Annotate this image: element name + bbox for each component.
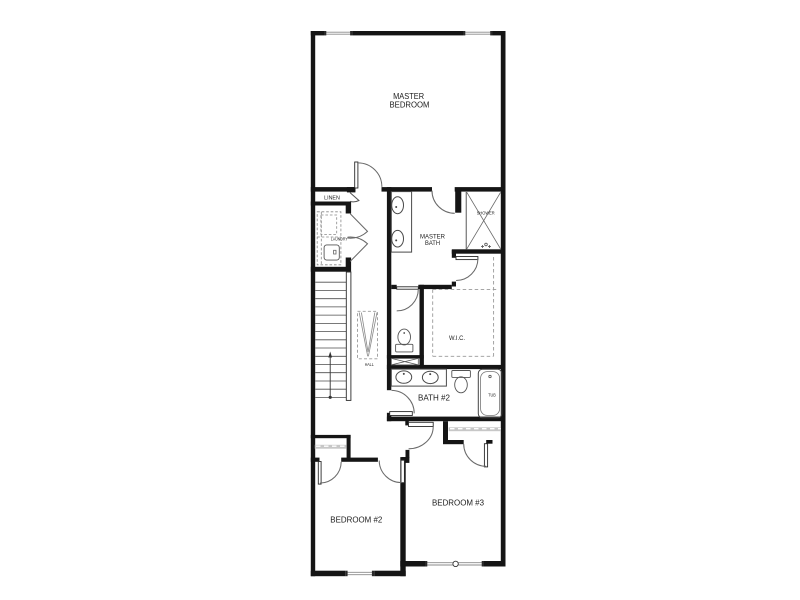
- svg-text:BEDROOM #3: BEDROOM #3: [432, 499, 485, 508]
- svg-text:TUB: TUB: [488, 393, 496, 398]
- svg-text:BATH #2: BATH #2: [418, 393, 451, 402]
- svg-text:BEDROOM: BEDROOM: [390, 100, 430, 109]
- svg-text:LAUNDRY: LAUNDRY: [331, 236, 348, 241]
- svg-text:LINEN: LINEN: [324, 195, 340, 201]
- svg-text:HALL: HALL: [365, 362, 375, 367]
- svg-text:SHOWER: SHOWER: [477, 211, 496, 216]
- svg-text:BEDROOM #2: BEDROOM #2: [330, 515, 383, 524]
- svg-text:W.I.C.: W.I.C.: [449, 335, 465, 342]
- svg-text:BATH: BATH: [425, 240, 440, 247]
